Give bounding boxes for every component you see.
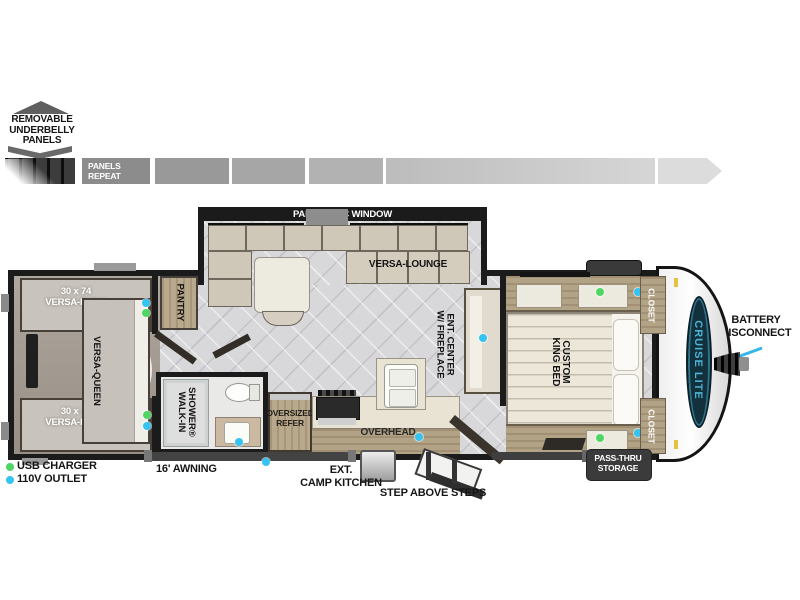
panel-segment-arrow	[658, 158, 722, 184]
versa-lounge-label: VERSA-LOUNGE	[346, 259, 470, 270]
panel-segment	[309, 158, 383, 184]
clearance-light	[674, 440, 678, 449]
usb-charger-dot	[142, 309, 150, 317]
camp-kitchen-label: EXT. CAMP KITCHEN	[286, 464, 396, 489]
passthru-label: PASS-THRU STORAGE	[586, 453, 650, 473]
110v-outlet-legend-label: 110V OUTLET	[17, 473, 127, 485]
awning-end-cap	[348, 450, 356, 462]
rear-bumper-stub	[1, 422, 9, 440]
walk-in-shower-label: WALK-IN SHOWER®	[175, 381, 197, 443]
awning-end-cap	[144, 450, 152, 462]
underbelly-label: REMOVABLE UNDERBELLY PANELS	[0, 115, 84, 147]
dinette-seat	[208, 251, 252, 307]
double-sink	[384, 364, 418, 408]
panel-segment-dark	[5, 158, 75, 184]
110v-outlet-dot	[235, 438, 243, 446]
bedroom-window-strip	[520, 272, 590, 277]
closet-bottom-label: CLOSET	[647, 404, 658, 450]
bed-bench	[542, 438, 586, 450]
roof-rail-tab	[94, 263, 136, 271]
side-rail	[492, 452, 584, 460]
panel-segment	[232, 158, 305, 184]
awning-label: 16' AWNING	[156, 463, 256, 475]
usb-charger-dot	[143, 411, 151, 419]
usb-charger-dot	[596, 288, 604, 296]
step-post	[452, 460, 457, 484]
rear-bumper-stub	[1, 294, 9, 312]
dinette-table	[254, 257, 310, 313]
steps-label: STEP ABOVE STEPS	[368, 487, 498, 499]
panel-segment	[155, 158, 229, 184]
closet-top-label: CLOSET	[647, 283, 658, 329]
refer-label: OVERSIZED REFER	[266, 409, 314, 428]
110v-outlet-dot	[479, 334, 487, 342]
underbelly-panels-icon: REMOVABLE UNDERBELLY PANELS	[0, 98, 84, 160]
brand-logo-text: CRUISE LITE	[691, 301, 705, 419]
cooktop	[316, 397, 360, 420]
slideout: PANORAMIC WINDOW VERSA-LOUNGE	[198, 207, 487, 285]
panel-segment	[386, 158, 655, 184]
110v-outlet-dot	[142, 299, 150, 307]
pantry-label: PANTRY	[174, 280, 187, 326]
110v-outlet-dot	[262, 458, 270, 466]
bathroom	[156, 372, 268, 454]
usb-charger-legend-label: USB CHARGER	[17, 460, 127, 472]
lounge-back-cushions	[208, 225, 468, 251]
bedroom-wardrobe-top	[506, 276, 642, 312]
stove-knobs	[318, 390, 356, 396]
floorplan-canvas: REMOVABLE UNDERBELLY PANELS PANELS REPEA…	[0, 0, 800, 600]
110v-outlet-dot	[143, 422, 151, 430]
king-bed	[506, 312, 644, 432]
usb-charger-dot	[596, 434, 604, 442]
roof-vent	[586, 260, 642, 276]
panels-repeat-segment: PANELS REPEAT	[82, 158, 150, 184]
toilet-tank	[249, 384, 260, 401]
king-bed-label: CUSTOM KING BED	[549, 327, 571, 397]
tv	[26, 334, 38, 388]
tongue-jack	[739, 357, 749, 371]
clearance-light	[674, 278, 678, 287]
up-arrow-icon	[13, 101, 69, 114]
bunk-room-wall	[152, 276, 158, 334]
usb-charger-legend-dot	[6, 463, 14, 471]
versa-queen-label: VERSA-QUEEN	[90, 331, 104, 411]
step-post	[426, 452, 431, 480]
110v-outlet-dot	[415, 433, 423, 441]
awning-rail	[150, 452, 350, 461]
110v-outlet-legend-dot	[6, 476, 14, 484]
cooktop-front	[318, 418, 356, 425]
ent-center-label: ENT. CENTER W/ FIREPLACE	[435, 306, 456, 384]
